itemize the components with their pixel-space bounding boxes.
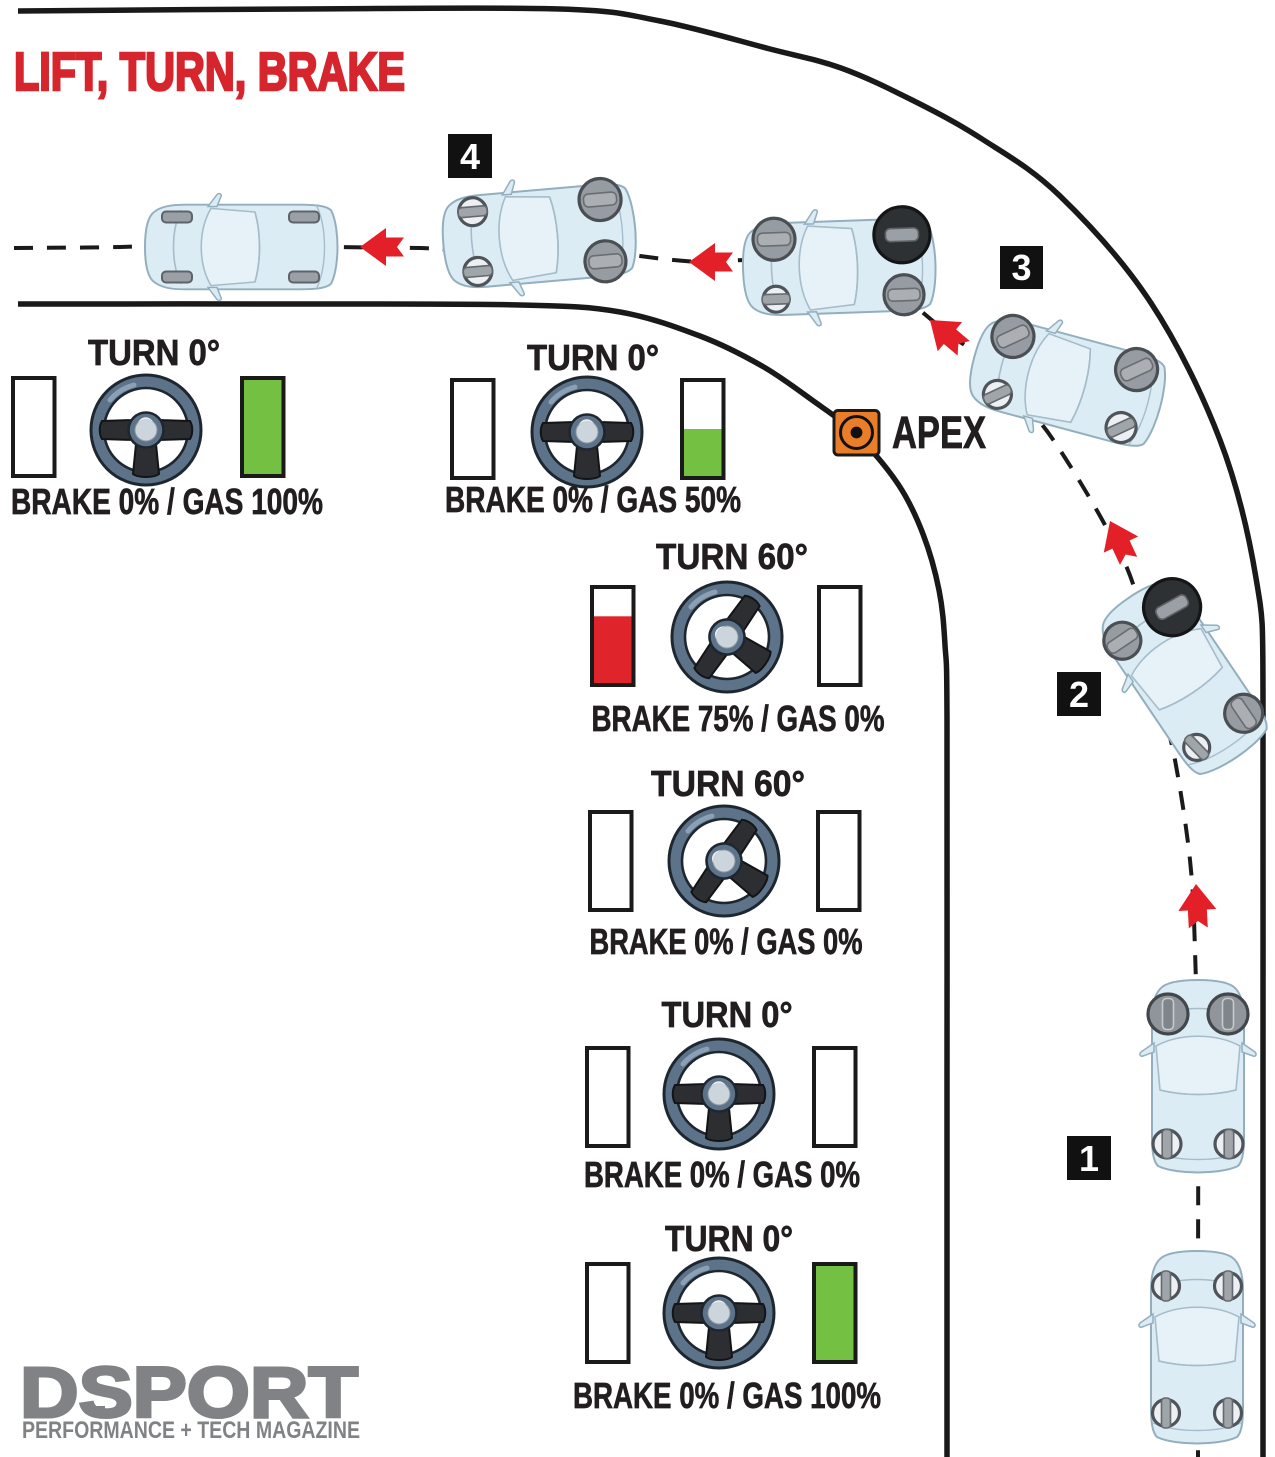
svg-text:TURN 0°: TURN 0° xyxy=(527,337,659,378)
svg-text:3: 3 xyxy=(1011,247,1031,288)
svg-text:TURN 60°: TURN 60° xyxy=(656,536,808,577)
svg-text:BRAKE 0% / GAS 100%: BRAKE 0% / GAS 100% xyxy=(11,481,323,522)
svg-text:BRAKE 0% / GAS 50%: BRAKE 0% / GAS 50% xyxy=(445,479,741,520)
svg-text:BRAKE 75% / GAS 0%: BRAKE 75% / GAS 0% xyxy=(592,698,885,739)
svg-text:2: 2 xyxy=(1069,674,1089,715)
svg-text:4: 4 xyxy=(460,136,480,177)
svg-text:LIFT, TURN, BRAKE: LIFT, TURN, BRAKE xyxy=(14,42,405,102)
svg-text:PERFORMANCE + TECH MAGAZINE: PERFORMANCE + TECH MAGAZINE xyxy=(22,1417,360,1444)
svg-text:TURN 0°: TURN 0° xyxy=(665,1218,793,1259)
svg-text:BRAKE 0% / GAS 100%: BRAKE 0% / GAS 100% xyxy=(573,1375,881,1416)
svg-text:TURN 0°: TURN 0° xyxy=(88,332,220,373)
svg-text:BRAKE 0% / GAS 0%: BRAKE 0% / GAS 0% xyxy=(590,921,863,962)
svg-text:BRAKE 0% / GAS 0%: BRAKE 0% / GAS 0% xyxy=(584,1154,860,1195)
svg-text:TURN 60°: TURN 60° xyxy=(651,763,805,804)
svg-text:APEX: APEX xyxy=(892,407,986,458)
svg-text:TURN 0°: TURN 0° xyxy=(662,994,793,1035)
svg-text:1: 1 xyxy=(1079,1138,1099,1179)
